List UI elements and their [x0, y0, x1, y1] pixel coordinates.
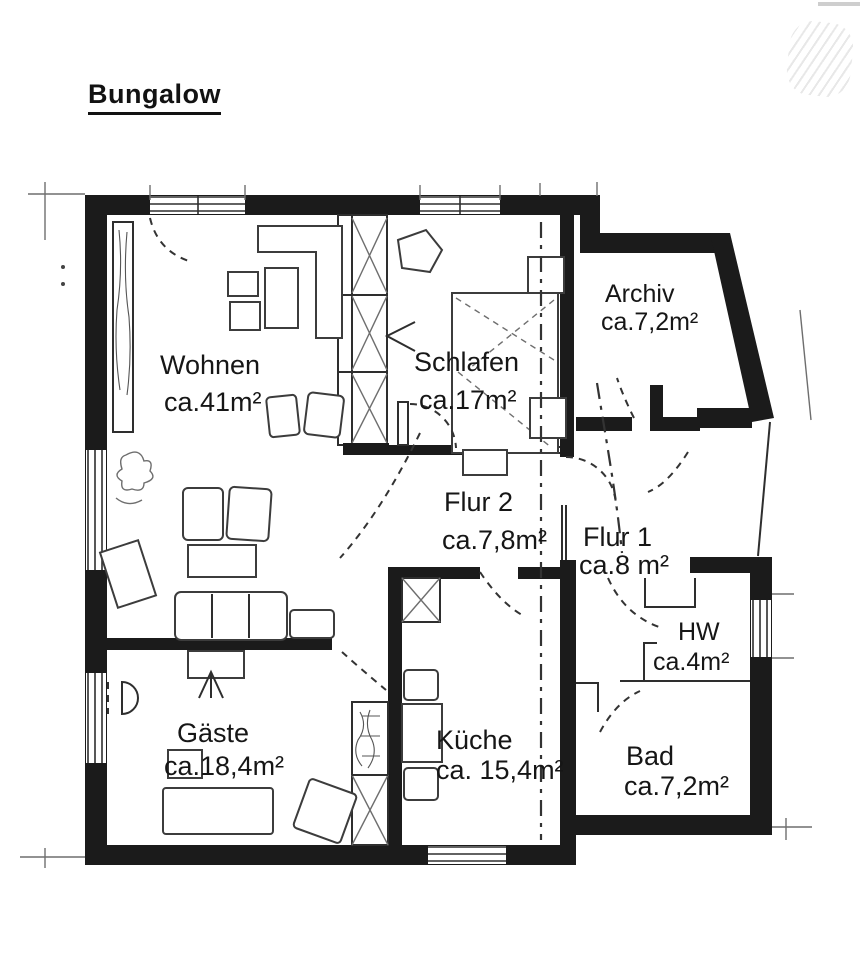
room-area-bad: ca.7,2m² [624, 771, 729, 801]
room-label-archiv: Archiv [605, 280, 675, 308]
room-label-schlafen: Schlafen [414, 347, 519, 377]
room-area-wohnen: ca.41m² [164, 387, 262, 417]
flur2-furniture [463, 450, 507, 475]
room-area-flur2: ca.7,8m² [442, 525, 547, 555]
window-top-schlafen [420, 196, 500, 214]
schlafen-furniture [387, 230, 566, 453]
dimension-ticks [20, 182, 812, 868]
window-right-hw [751, 600, 771, 657]
room-label-wohnen: Wohnen [160, 350, 260, 380]
room-label-flur1: Flur 1 [583, 522, 652, 552]
wardrobe-schrank [338, 215, 389, 455]
floor-plan-drawing: Wohnen ca.41m² Schlafen ca.17m² Archiv c… [0, 0, 860, 960]
room-label-hw: HW [678, 618, 720, 646]
wohnen-furniture [100, 222, 344, 640]
room-label-kueche: Küche [436, 725, 513, 755]
room-area-archiv: ca.7,2m² [601, 308, 698, 336]
room-area-hw: ca.4m² [653, 648, 729, 676]
room-label-gaeste: Gäste [177, 718, 249, 748]
document-page: Bungalow [0, 0, 860, 960]
room-area-gaeste: ca.18,4m² [164, 751, 284, 781]
window-bottom-kueche [428, 846, 506, 864]
room-label-bad: Bad [626, 741, 674, 771]
room-area-kueche: ca. 15,4m² [436, 755, 564, 785]
room-area-schlafen: ca.17m² [419, 385, 517, 415]
window-top-left [150, 196, 245, 214]
window-left-gaeste [86, 673, 106, 763]
room-area-flur1: ca.8 m² [579, 550, 669, 580]
room-label-flur2: Flur 2 [444, 487, 513, 517]
